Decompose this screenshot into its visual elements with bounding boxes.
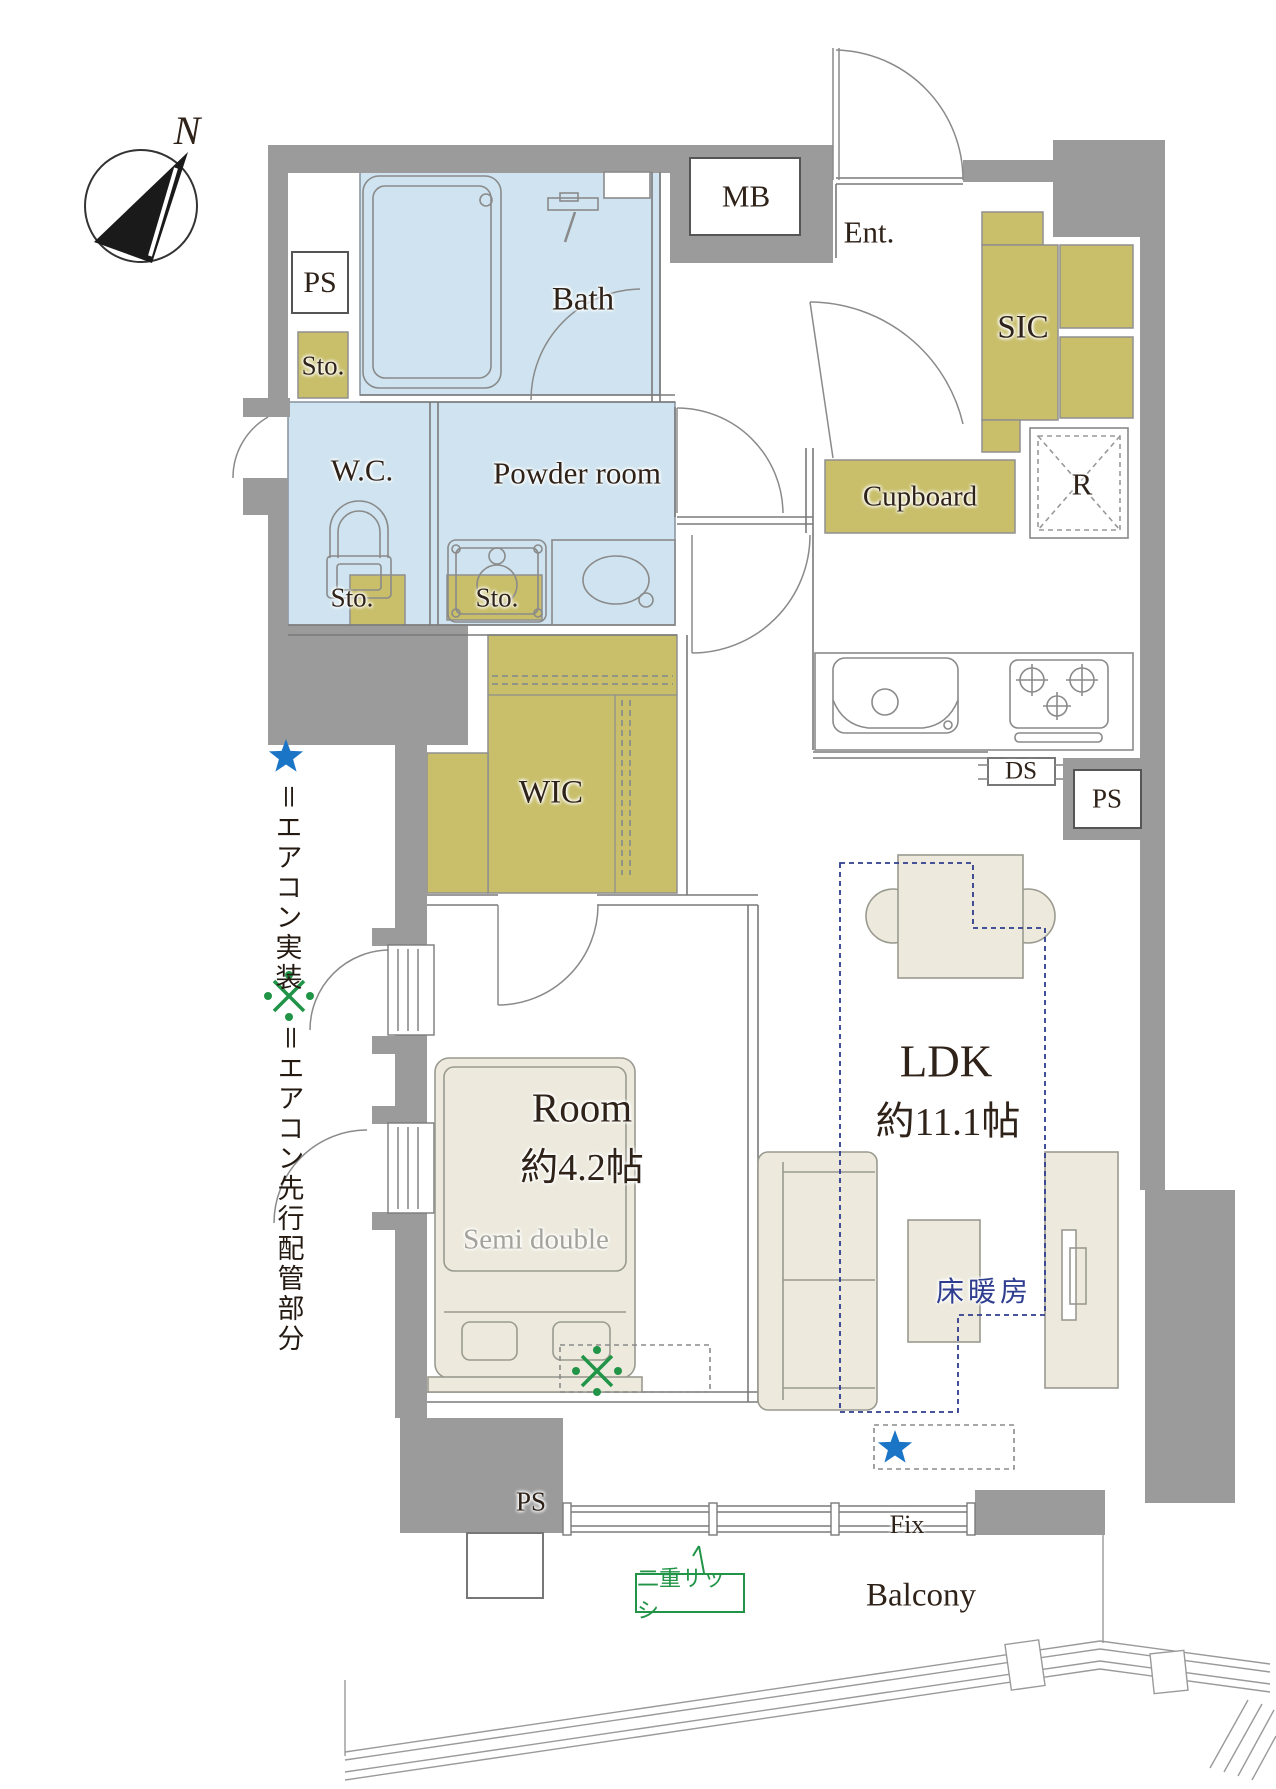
storage-hall-label: Sto. bbox=[302, 353, 345, 380]
sic-label: SIC bbox=[997, 312, 1048, 345]
kitchen-counter bbox=[815, 653, 1133, 750]
ps-top-label: PS bbox=[303, 268, 336, 298]
ldk-door-arc bbox=[692, 535, 810, 653]
entrance-door-arc bbox=[836, 50, 963, 180]
room-size-label: 約4.2帖 bbox=[520, 1149, 644, 1187]
tv-board bbox=[1045, 1152, 1118, 1388]
entrance-label: Ent. bbox=[844, 217, 895, 248]
double-sash-label: 二重サッシ bbox=[637, 1561, 743, 1625]
pillow bbox=[462, 1322, 517, 1360]
room-door-arc bbox=[498, 905, 598, 1005]
bath-counter bbox=[604, 172, 650, 198]
legend-kome-text: ＝エアコン先行配管部分 bbox=[270, 1024, 309, 1354]
wc-label: W.C. bbox=[331, 455, 394, 486]
hall-door-arc bbox=[810, 302, 963, 424]
pillow bbox=[553, 1322, 610, 1360]
balcony-label: Balcony bbox=[866, 1580, 976, 1613]
wc-door-arc bbox=[233, 417, 268, 478]
legend-star-text: ＝エアコン実装 bbox=[268, 783, 307, 993]
ac-star-box bbox=[874, 1425, 1014, 1469]
wic-label: WIC bbox=[519, 777, 583, 810]
dining-table bbox=[898, 855, 1023, 978]
balcony-drain bbox=[1005, 1640, 1045, 1690]
storage-powder-label: Sto. bbox=[476, 585, 519, 612]
floor-heating-label: 床暖房 bbox=[936, 1279, 1032, 1307]
double-sash-callout: 二重サッシ bbox=[635, 1573, 745, 1613]
floorplan-drawing bbox=[0, 0, 1276, 1789]
fridge-label: R bbox=[1072, 469, 1093, 500]
powder-door-arc bbox=[677, 408, 783, 513]
balcony-drain bbox=[1150, 1650, 1188, 1693]
ldk-size-label: 約11.1帖 bbox=[876, 1103, 1021, 1142]
ldk-name-label: LDK bbox=[900, 1040, 992, 1085]
ps-bottom-label: PS bbox=[516, 1489, 546, 1516]
fix-window-label: Fix bbox=[890, 1512, 925, 1538]
tv bbox=[1062, 1230, 1076, 1320]
floorplan: N PS Sto. Bath MB Ent. SIC R Cupboard W.… bbox=[0, 0, 1276, 1789]
casement-window-arc bbox=[310, 950, 390, 1030]
room-name-label: Room bbox=[532, 1088, 632, 1129]
compass bbox=[85, 150, 197, 263]
bed-size-label: Semi double bbox=[463, 1226, 609, 1255]
compass-n-label: N bbox=[174, 111, 201, 151]
cupboard-label: Cupboard bbox=[863, 483, 977, 512]
ds-label: DS bbox=[1005, 759, 1037, 784]
sofa bbox=[758, 1152, 877, 1410]
star-icon bbox=[878, 1430, 912, 1463]
ps-right-label: PS bbox=[1092, 786, 1122, 813]
storage-wc-label: Sto. bbox=[331, 585, 374, 612]
powder-room-label: Powder room bbox=[493, 458, 661, 489]
bath-label: Bath bbox=[552, 284, 614, 317]
mb-label: MB bbox=[722, 181, 770, 212]
